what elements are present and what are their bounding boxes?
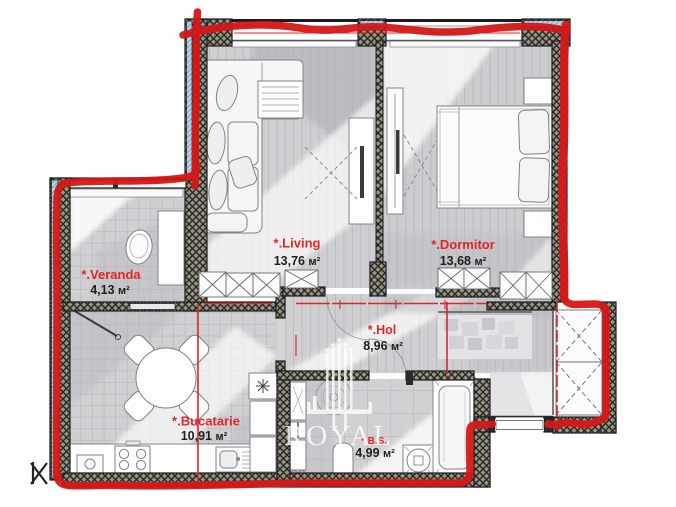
svg-text:ROYAL: ROYAL [284, 420, 393, 452]
svg-text:*.Hol: *.Hol [368, 323, 396, 337]
svg-text:*.Living: *.Living [274, 236, 321, 251]
svg-text:8,96 м²: 8,96 м² [363, 339, 403, 353]
svg-text:13,68 м²: 13,68 м² [440, 254, 487, 268]
svg-text:*.Bucatarie: *.Bucatarie [172, 414, 240, 429]
svg-text:10,91 м²: 10,91 м² [181, 429, 228, 443]
svg-text:*.Veranda: *.Veranda [81, 267, 141, 282]
svg-text:4,13 м²: 4,13 м² [90, 283, 130, 297]
svg-text:*.Dormitor: *.Dormitor [431, 237, 495, 252]
svg-text:13,76 м²: 13,76 м² [274, 254, 321, 268]
